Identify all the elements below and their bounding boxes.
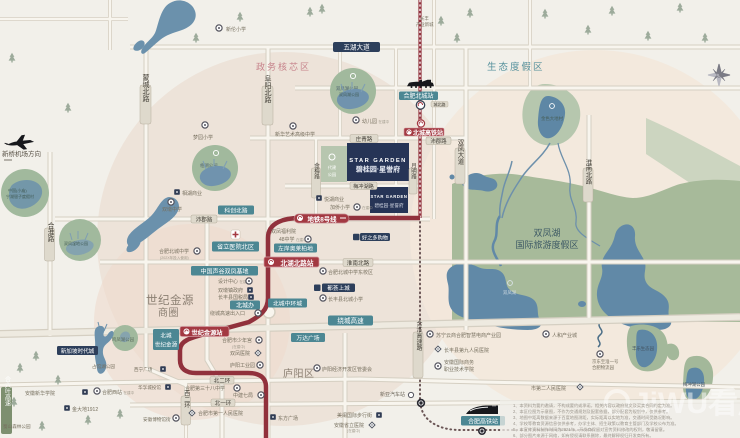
svg-text:城北路: 城北路 xyxy=(434,101,446,107)
svg-text:(在建中): (在建中) xyxy=(347,428,360,433)
svg-text:省立医院北区: 省立医院北区 xyxy=(217,243,254,251)
svg-text:碧桂园·星誉府: 碧桂园·星誉府 xyxy=(355,165,400,174)
svg-text:合肥市第一人民医院: 合肥市第一人民医院 xyxy=(198,410,243,417)
svg-text:生态度假区: 生态度假区 xyxy=(487,61,545,73)
svg-text:(202X年投入使用): (202X年投入使用) xyxy=(160,255,189,260)
svg-text:代建: 代建 xyxy=(328,164,337,171)
svg-text:中国(小庙): 中国(小庙) xyxy=(8,187,27,193)
svg-text:地铁8号线: 地铁8号线 xyxy=(307,214,337,223)
svg-text:科创北路: 科创北路 xyxy=(224,206,247,214)
svg-text:(在建中): (在建中) xyxy=(232,344,245,349)
svg-text:双凤医院: 双凤医院 xyxy=(230,350,250,357)
svg-text:好之多购物: 好之多购物 xyxy=(362,233,388,241)
svg-text:新亚汽车站: 新亚汽车站 xyxy=(380,391,405,398)
svg-text:安徽国际商务: 安徽国际商务 xyxy=(444,359,474,366)
svg-text:西二环: 西二环 xyxy=(183,390,190,409)
svg-text:美阑国际步行街: 美阑国际步行街 xyxy=(337,412,372,419)
svg-text:合肥第三十八中学: 合肥第三十八中学 xyxy=(185,385,225,392)
svg-text:长丰县北城小学: 长丰县北城小学 xyxy=(328,296,363,303)
svg-text:双凤福利院: 双凤福利院 xyxy=(271,228,296,235)
svg-text:绕城高速出入口: 绕城高速出入口 xyxy=(210,310,245,317)
svg-text:宁湖银子度假村: 宁湖银子度假村 xyxy=(6,193,34,199)
svg-text:长丰县国税局: 长丰县国税局 xyxy=(218,294,248,301)
svg-text:双凤大道: 双凤大道 xyxy=(457,138,464,165)
svg-text:鸣凤湖公园: 鸣凤湖公园 xyxy=(112,336,135,343)
svg-text:合肥西站 在建中: 合肥西站 在建中 xyxy=(102,389,135,396)
svg-text:世纪金源站: 世纪金源站 xyxy=(192,329,224,337)
svg-text:梦园小学: 梦园小学 xyxy=(193,134,213,141)
svg-text:万达广场: 万达广场 xyxy=(296,334,319,342)
svg-text:人和产业城: 人和产业城 xyxy=(552,332,577,339)
svg-text:占馆湖公园: 占馆湖公园 xyxy=(92,363,115,370)
svg-text:北一环: 北一环 xyxy=(215,399,232,407)
svg-text:中建七局: 中建七局 xyxy=(233,392,253,399)
svg-text:碧桂园·星誉府: 碧桂园·星誉府 xyxy=(374,202,403,209)
svg-text:庐阳经济开发区管委会: 庐阳经济开发区管委会 xyxy=(322,366,372,373)
svg-text:北二环: 北二环 xyxy=(214,376,231,384)
svg-text:双墩中学: 双墩中学 xyxy=(162,206,182,213)
svg-text:合肥高铁站: 合肥高铁站 xyxy=(468,417,498,425)
svg-text:合淮高速路: 合淮高速路 xyxy=(415,320,422,352)
svg-text:金色大地村: 金色大地村 xyxy=(541,115,564,122)
svg-text:合肥北城中学东校区: 合肥北城中学东校区 xyxy=(328,269,373,276)
svg-text:淮南北路: 淮南北路 xyxy=(585,157,592,185)
svg-text:北湖北路站: 北湖北路站 xyxy=(281,259,314,268)
svg-text:绕城高速: 绕城高速 xyxy=(337,316,364,325)
svg-text:蜀山森林公园: 蜀山森林公园 xyxy=(3,423,31,430)
svg-text:双凤湖: 双凤湖 xyxy=(503,289,517,296)
svg-text:加侨小学: 加侨小学 xyxy=(330,204,350,211)
svg-text:中国声谷双凤基地: 中国声谷双凤基地 xyxy=(200,267,248,275)
svg-text:五湖大道: 五湖大道 xyxy=(343,43,370,52)
svg-text:产业新城: 产业新城 xyxy=(416,21,434,28)
svg-text:新华艺术高级中学: 新华艺术高级中学 xyxy=(275,131,315,138)
svg-text:在建中: 在建中 xyxy=(362,205,373,210)
svg-text:世纪金源: 世纪金源 xyxy=(146,293,194,307)
svg-text:金梅路: 金梅路 xyxy=(313,162,320,181)
svg-text:国际旅游度假区: 国际旅游度假区 xyxy=(515,239,578,250)
svg-text:苏宁云商合肥智慧电商产业园: 苏宁云商合肥智慧电商产业园 xyxy=(436,332,501,339)
svg-text:东方广场: 东方广场 xyxy=(278,415,298,422)
svg-text:双凤湖: 双凤湖 xyxy=(533,228,560,238)
svg-text:安徽新华学院: 安徽新华学院 xyxy=(25,390,55,397)
svg-text:悦湖商业: 悦湖商业 xyxy=(324,196,344,203)
svg-text:淮南北路: 淮南北路 xyxy=(347,259,370,267)
svg-text:政务核芯区: 政务核芯区 xyxy=(256,61,311,72)
svg-text:沛郡路: 沛郡路 xyxy=(430,137,447,145)
svg-text:STAR GARDEN: STAR GARDEN xyxy=(371,194,408,199)
svg-text:庐阳区: 庐阳区 xyxy=(283,367,315,380)
svg-text:新桥机场方向: 新桥机场方向 xyxy=(2,149,41,158)
svg-text:京东至淮一号: 京东至淮一号 xyxy=(592,358,619,365)
svg-text:新加坡时代城: 新加坡时代城 xyxy=(61,347,95,355)
svg-text:蒙城北路: 蒙城北路 xyxy=(142,73,150,103)
svg-text:新伦小学: 新伦小学 xyxy=(226,26,246,33)
svg-text:相湖商业: 相湖商业 xyxy=(182,190,202,197)
svg-text:3、地图中距离数据来源于百度地图测距，实际距离以实地为准，交: 3、地图中距离数据来源于百度地图测距，实际距离以实地为准，交通时间受路况影响。 xyxy=(513,414,674,421)
svg-text:双凤湖公园: 双凤湖公园 xyxy=(339,91,359,97)
svg-text:职业技术学院: 职业技术学院 xyxy=(444,366,474,373)
svg-text:北城高铁站: 北城高铁站 xyxy=(413,129,443,137)
svg-text:安徽博物馆街: 安徽博物馆街 xyxy=(143,416,171,423)
svg-text:西宁广场: 西宁广场 xyxy=(134,366,153,373)
svg-text:华孚城投馆: 华孚城投馆 xyxy=(138,384,161,391)
svg-text:2、本区位图为示意图，不作为交通规划及配套依据，部分配套为规: 2、本区位图为示意图，不作为交通规划及配套依据，部分配套为规划中，仅供参考。 xyxy=(513,408,670,415)
svg-text:沛郡路: 沛郡路 xyxy=(196,215,213,223)
svg-text:金大地1912: 金大地1912 xyxy=(72,406,98,413)
svg-text:长丰县第九人民医院: 长丰县第九人民医院 xyxy=(444,347,489,354)
svg-text:4、学校等教育资源信息仅供参考，办学主体、招生政策以教育主管: 4、学校等教育资源信息仅供参考，办学主体、招生政策以教育主管部门及学校公布为准。 xyxy=(513,420,679,427)
svg-text:STAR GARDEN: STAR GARDEN xyxy=(349,158,406,164)
svg-text:北城: 北城 xyxy=(160,331,172,339)
svg-text:庄青路: 庄青路 xyxy=(356,135,373,143)
svg-text:庐阳工业园: 庐阳工业园 xyxy=(230,362,255,369)
svg-text:安徽省立医院: 安徽省立医院 xyxy=(334,422,364,429)
svg-text:都荟上城: 都荟上城 xyxy=(327,284,350,292)
svg-text:双凤湿地公园: 双凤湿地公园 xyxy=(64,240,88,246)
svg-text:48中学 在建中: 48中学 在建中 xyxy=(279,236,307,243)
svg-text:商圈: 商圈 xyxy=(158,306,179,319)
svg-text:世纪金源: 世纪金源 xyxy=(155,340,178,348)
svg-text:合肥北城中学: 合肥北城中学 xyxy=(159,248,189,255)
svg-text:合肥市少年宫: 合肥市少年宫 xyxy=(222,337,252,344)
svg-text:月明路: 月明路 xyxy=(410,163,417,181)
svg-text:合肥物流园: 合肥物流园 xyxy=(592,364,615,371)
svg-text:5、本宣传资料制作时间为2021年，开发商保留对宣传资料修改: 5、本宣传资料制作时间为2021年，开发商保留对宣传资料修改的权利，敬请留意。 xyxy=(513,426,667,433)
svg-text:北城办: 北城办 xyxy=(236,301,254,309)
svg-text:双墩镇政府: 双墩镇政府 xyxy=(218,287,243,294)
svg-text:北城中环城: 北城中环城 xyxy=(273,299,302,307)
svg-text:合肥北城站: 合肥北城站 xyxy=(403,92,433,100)
svg-text:长丰: 长丰 xyxy=(420,15,429,22)
svg-text:阜阳北路: 阜阳北路 xyxy=(264,74,272,104)
svg-text:丰乐生态园: 丰乐生态园 xyxy=(632,345,655,352)
svg-text:梅冲湖路: 梅冲湖路 xyxy=(353,182,375,190)
svg-text:合六叶高速: 合六叶高速 xyxy=(4,375,11,407)
svg-text:左岸奥莱柏地: 左岸奥莱柏地 xyxy=(278,244,313,252)
svg-text:幼儿园 在建中: 幼儿园 在建中 xyxy=(362,118,390,125)
svg-text:6、部分图片来源于网络，如有侵权请联系删除，最终解释权归开发: 6、部分图片来源于网络，如有侵权请联系删除，最终解释权归开发商所有。 xyxy=(513,432,654,438)
svg-text:1、本资料为要约邀请，不构成要约或承诺，相关内容以政府批文及: 1、本资料为要约邀请，不构成要约或承诺，相关内容以政府批文及买卖合同约定为准。 xyxy=(513,402,674,409)
svg-text:市第二人民医院: 市第二人民医院 xyxy=(531,385,566,392)
